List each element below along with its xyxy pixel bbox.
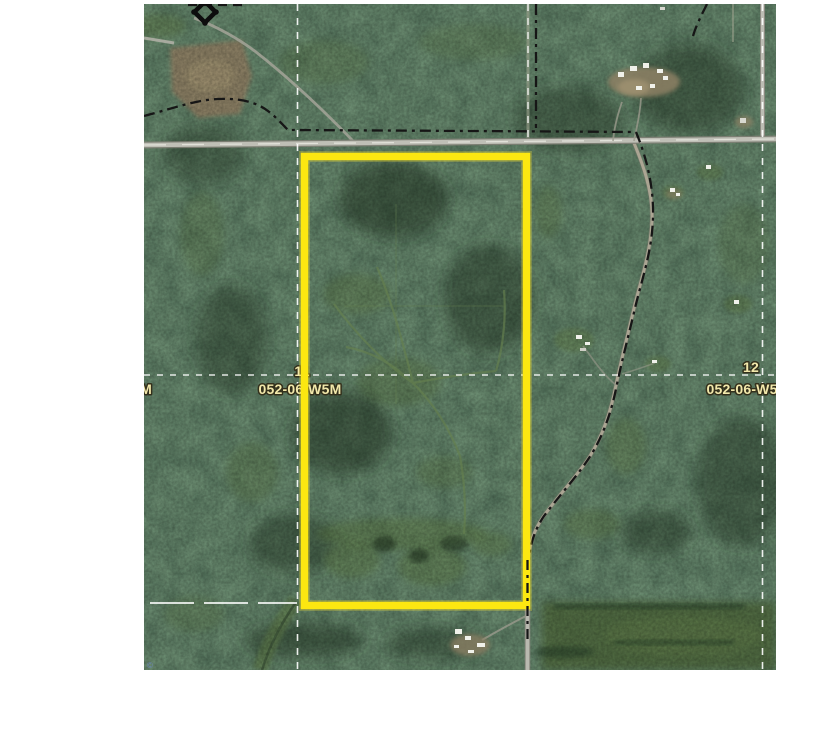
map-canvas: 11 052-06-W5M 12 052-06-W5M W5M © bbox=[144, 4, 776, 670]
page: { "map": { "alt": "Aerial satellite map … bbox=[0, 0, 840, 756]
aerial-map-image: 11 052-06-W5M 12 052-06-W5M W5M © bbox=[144, 4, 776, 670]
canopy-grain bbox=[144, 4, 776, 670]
right-township-label: 052-06-W5M bbox=[707, 381, 776, 397]
copyright-mark: © bbox=[147, 661, 153, 670]
right-section-number: 12 bbox=[743, 359, 759, 375]
west-edge-partial-label: W5M bbox=[144, 381, 152, 397]
